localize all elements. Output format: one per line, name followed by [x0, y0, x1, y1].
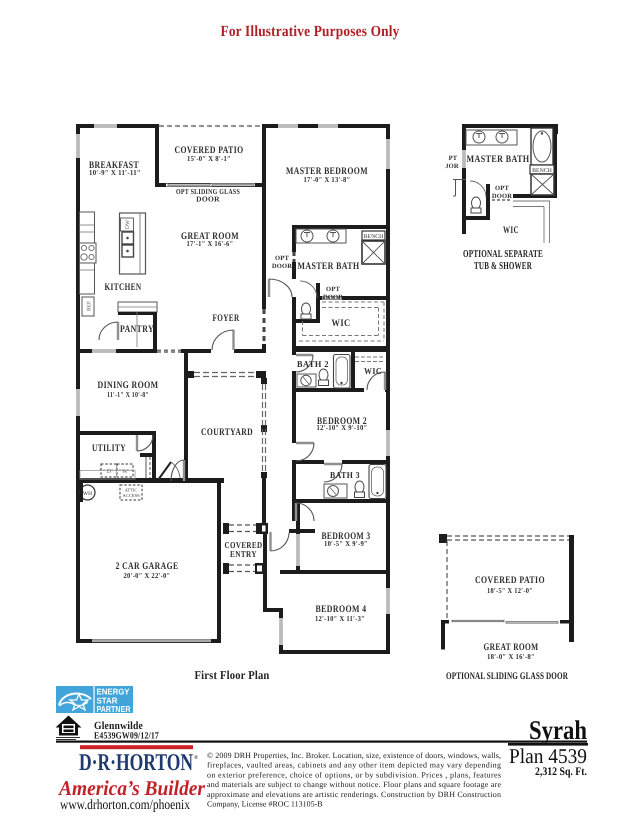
svg-text:17′-1″ X 16′-6″: 17′-1″ X 16′-6″	[187, 239, 234, 248]
svg-text:UTILITY: UTILITY	[92, 443, 126, 454]
svg-text:ACCESS: ACCESS	[122, 493, 140, 498]
svg-text:fireplaces, vaulted areas, cab: fireplaces, vaulted areas, cabinets and …	[207, 761, 501, 770]
svg-text:15′-0″ X 8′-1″: 15′-0″ X 8′-1″	[187, 154, 231, 163]
svg-text:PANTRY: PANTRY	[120, 324, 154, 335]
svg-text:COVERED PATIO: COVERED PATIO	[475, 575, 545, 586]
svg-text:ATTIC: ATTIC	[124, 488, 137, 493]
svg-text:D·R·HORTON: D·R·HORTON	[79, 750, 193, 776]
svg-text:For Illustrative Purposes Only: For Illustrative Purposes Only	[221, 23, 400, 40]
svg-text:PARTNER: PARTNER	[97, 704, 131, 714]
svg-text:MASTER BATH: MASTER BATH	[467, 154, 530, 165]
svg-text:E4539GW09/12/17: E4539GW09/12/17	[94, 732, 159, 742]
svg-text:BATH 2: BATH 2	[297, 359, 329, 369]
svg-text:10′-9″ X 11′-11″: 10′-9″ X 11′-11″	[89, 168, 141, 177]
svg-text:Syrah: Syrah	[529, 715, 587, 745]
svg-text:WIC: WIC	[503, 225, 519, 236]
svg-text:WIC: WIC	[332, 318, 351, 329]
svg-text:18′-5″ X 12′-0″: 18′-5″ X 12′-0″	[487, 586, 533, 595]
svg-text:FOYER: FOYER	[213, 313, 240, 324]
svg-text:ENTRY: ENTRY	[230, 549, 257, 559]
svg-text:12′-10″ X 11′-3″: 12′-10″ X 11′-3″	[315, 614, 365, 623]
svg-text:2,312 Sq. Ft.: 2,312 Sq. Ft.	[535, 766, 587, 778]
svg-text:18′-0″ X 16′-8″: 18′-0″ X 16′-8″	[487, 652, 535, 661]
svg-text:17′-0″ X 13′-8″: 17′-0″ X 13′-8″	[304, 175, 351, 184]
svg-text:10′-5″ X 9′-9″: 10′-5″ X 9′-9″	[324, 539, 368, 548]
svg-text:Glennwilde: Glennwilde	[94, 720, 143, 732]
svg-text:on exterior preference, choice: on exterior preference, choice of option…	[207, 770, 501, 779]
svg-text:OPT: OPT	[495, 185, 509, 192]
svg-text:BENCH: BENCH	[364, 234, 384, 240]
svg-text:DOOR: DOOR	[272, 263, 292, 270]
svg-text:TUB & SHOWER: TUB & SHOWER	[474, 261, 532, 272]
svg-text:© 2009 DRH Properties, Inc. B: © 2009 DRH Properties, Inc. Broker. Loca…	[207, 751, 501, 760]
svg-text:WH: WH	[83, 491, 92, 497]
svg-text:DW: DW	[125, 219, 131, 229]
svg-text:11′-1″ X 10′-8″: 11′-1″ X 10′-8″	[107, 390, 149, 399]
svg-text:OPT: OPT	[326, 286, 340, 293]
svg-text:BENCH: BENCH	[532, 168, 552, 174]
svg-text:First Floor Plan: First Floor Plan	[195, 668, 270, 682]
svg-text:DOOR: DOOR	[196, 195, 220, 204]
svg-text:REF: REF	[87, 301, 93, 311]
svg-text:BATH 3: BATH 3	[330, 470, 360, 480]
svg-text:OPT: OPT	[275, 255, 289, 262]
svg-text:www.drhorton.com/phoenix: www.drhorton.com/phoenix	[60, 798, 190, 813]
svg-text:12′-10″ X 9′-10″: 12′-10″ X 9′-10″	[317, 423, 368, 432]
svg-text:JOR: JOR	[445, 163, 459, 170]
svg-text:DOOR: DOOR	[323, 294, 343, 301]
svg-text:PT: PT	[449, 155, 458, 162]
svg-text:DOOR: DOOR	[492, 193, 512, 200]
svg-text:OPTIONAL SEPARATE: OPTIONAL SEPARATE	[463, 249, 543, 260]
svg-text:®: ®	[194, 755, 199, 761]
svg-text:America’s Builder: America’s Builder	[57, 776, 206, 800]
svg-text:KITCHEN: KITCHEN	[105, 282, 142, 293]
svg-text:COURTYARD: COURTYARD	[201, 427, 253, 438]
svg-text:20′-0″ X 22′-0″: 20′-0″ X 22′-0″	[124, 571, 171, 580]
svg-text:approximate and elevations are: approximate and elevations are artistic …	[207, 790, 501, 799]
svg-text:OPTIONAL SLIDING GLASS DOOR: OPTIONAL SLIDING GLASS DOOR	[446, 671, 568, 682]
svg-text:MASTER BATH: MASTER BATH	[298, 261, 360, 272]
svg-text:Company, License #ROC 113105-B: Company, License #ROC 113105-B	[207, 800, 323, 809]
svg-text:Plan 4539: Plan 4539	[509, 744, 587, 768]
svg-text:WIC: WIC	[364, 366, 382, 376]
svg-text:and materials are subject to c: and materials are subject to change with…	[207, 780, 501, 789]
